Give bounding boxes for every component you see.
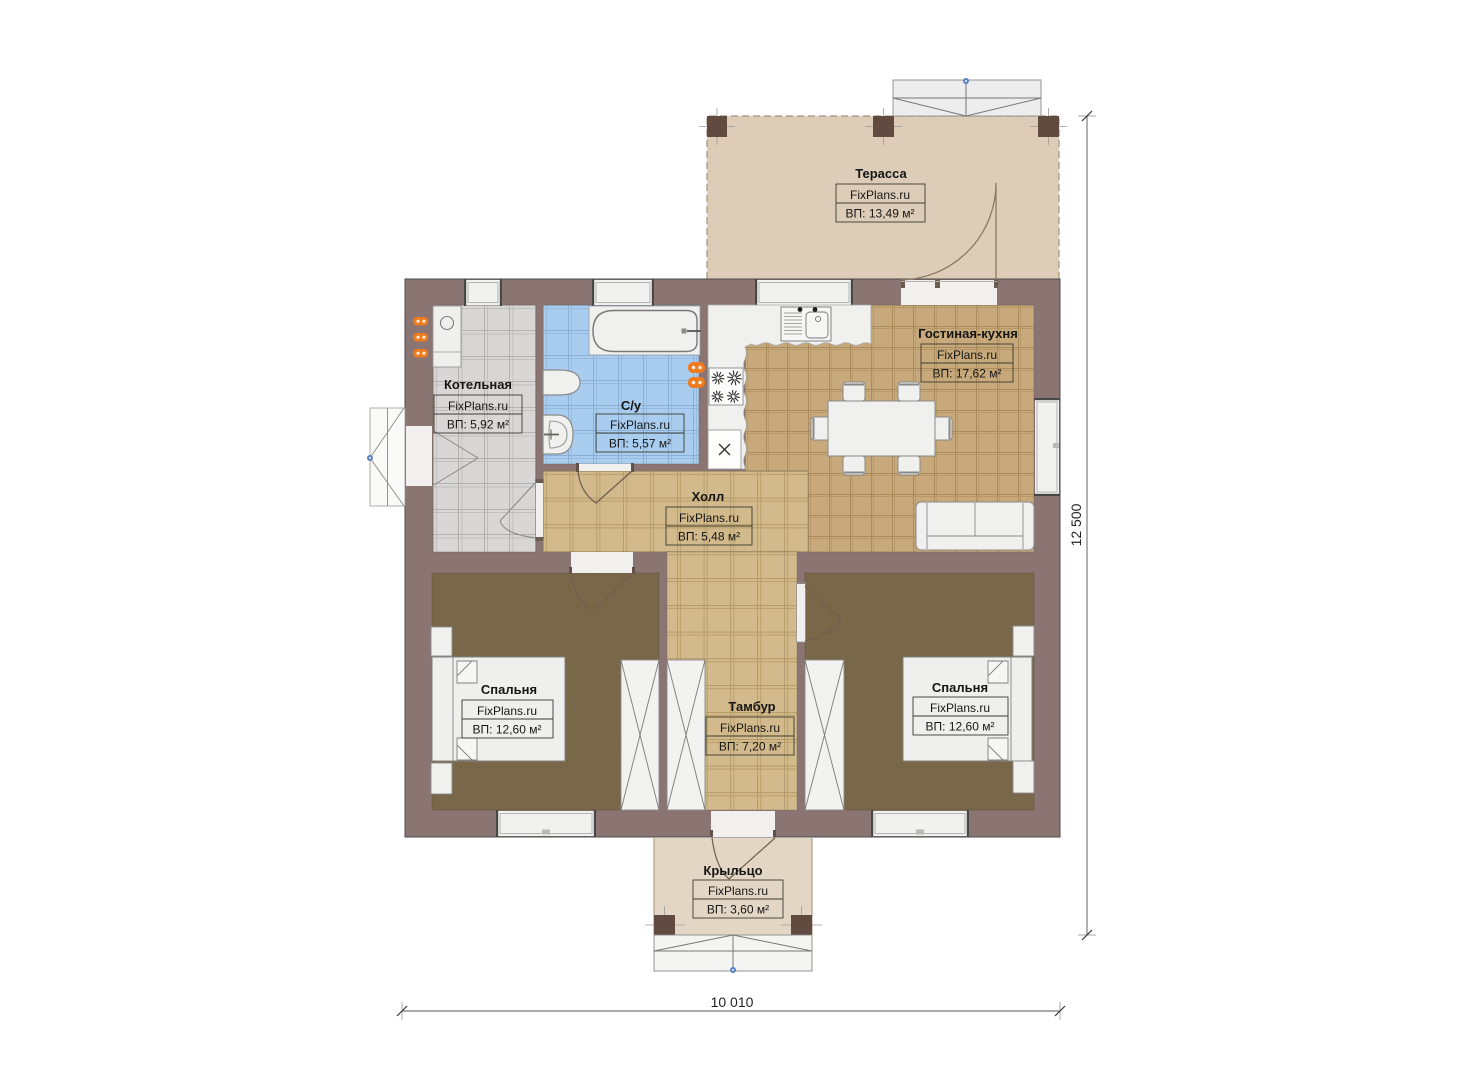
svg-text:FixPlans.ru: FixPlans.ru [448, 399, 508, 413]
svg-text:FixPlans.ru: FixPlans.ru [708, 884, 768, 898]
svg-text:FixPlans.ru: FixPlans.ru [937, 348, 997, 362]
svg-text:ВП: 5,92 м²: ВП: 5,92 м² [447, 418, 509, 432]
svg-text:Котельная: Котельная [444, 377, 512, 392]
svg-text:ВП: 12,60 м²: ВП: 12,60 м² [926, 720, 995, 734]
svg-text:Спальня: Спальня [932, 680, 988, 695]
svg-text:Крыльцо: Крыльцо [703, 863, 762, 878]
svg-text:С/у: С/у [621, 398, 642, 413]
svg-text:Терасса: Терасса [855, 166, 907, 181]
svg-text:ВП: 5,48 м²: ВП: 5,48 м² [678, 530, 740, 544]
svg-text:FixPlans.ru: FixPlans.ru [679, 511, 739, 525]
svg-text:Гостиная-кухня: Гостиная-кухня [918, 326, 1018, 341]
svg-text:12 500: 12 500 [1068, 503, 1084, 546]
svg-text:ВП: 5,57 м²: ВП: 5,57 м² [609, 437, 671, 451]
svg-text:Спальня: Спальня [481, 682, 537, 697]
svg-text:FixPlans.ru: FixPlans.ru [720, 721, 780, 735]
svg-text:ВП: 7,20 м²: ВП: 7,20 м² [719, 740, 781, 754]
svg-text:FixPlans.ru: FixPlans.ru [610, 418, 670, 432]
svg-text:Холл: Холл [692, 489, 725, 504]
svg-text:FixPlans.ru: FixPlans.ru [850, 188, 910, 202]
svg-text:Тамбур: Тамбур [728, 699, 775, 714]
svg-text:ВП: 13,49 м²: ВП: 13,49 м² [846, 207, 915, 221]
svg-text:ВП: 3,60 м²: ВП: 3,60 м² [707, 903, 769, 917]
svg-text:FixPlans.ru: FixPlans.ru [930, 701, 990, 715]
svg-text:ВП: 17,62 м²: ВП: 17,62 м² [933, 367, 1002, 381]
svg-text:FixPlans.ru: FixPlans.ru [477, 704, 537, 718]
svg-text:ВП: 12,60 м²: ВП: 12,60 м² [473, 723, 542, 737]
svg-text:10 010: 10 010 [711, 994, 754, 1010]
